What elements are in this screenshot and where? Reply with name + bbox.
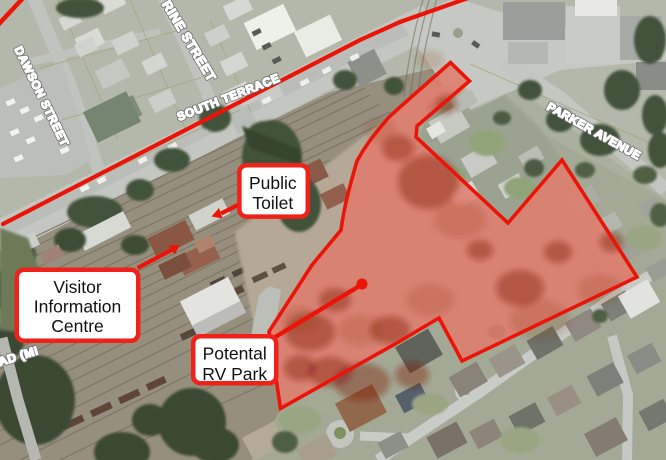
svg-text:Information: Information bbox=[34, 297, 122, 317]
svg-text:Centre: Centre bbox=[51, 316, 104, 336]
svg-text:Visitor: Visitor bbox=[53, 277, 101, 297]
svg-text:Public: Public bbox=[249, 173, 297, 193]
svg-text:Toilet: Toilet bbox=[252, 193, 293, 213]
svg-text:Potental: Potental bbox=[203, 344, 267, 364]
svg-text:RV Park: RV Park bbox=[202, 364, 267, 384]
